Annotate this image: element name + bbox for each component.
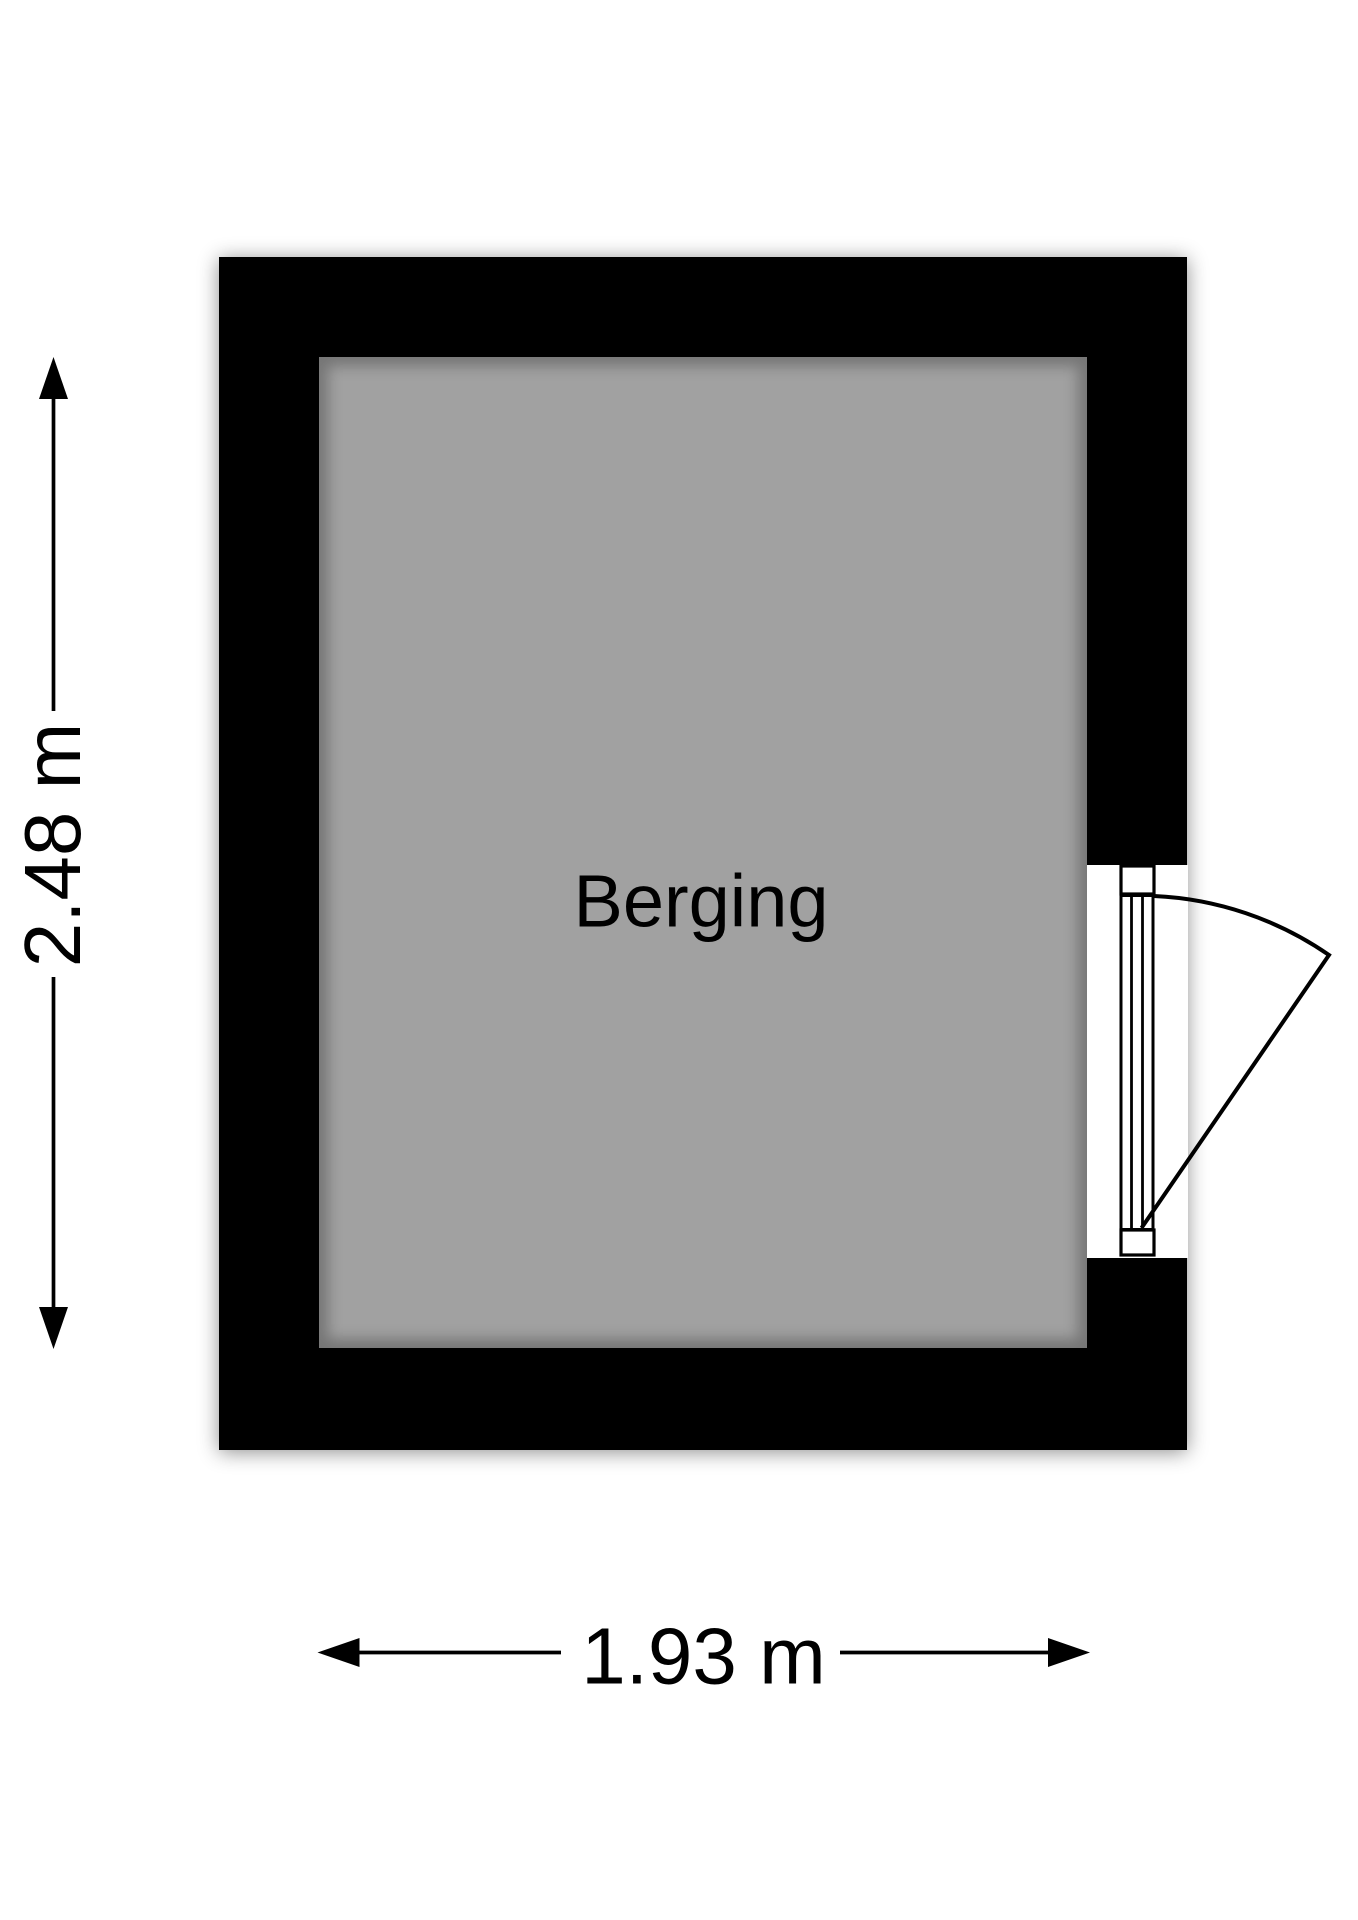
svg-text:1.93 m: 1.93 m: [581, 1612, 826, 1701]
svg-text:Berging: Berging: [573, 860, 828, 943]
svg-text:2.48 m: 2.48 m: [8, 723, 97, 968]
